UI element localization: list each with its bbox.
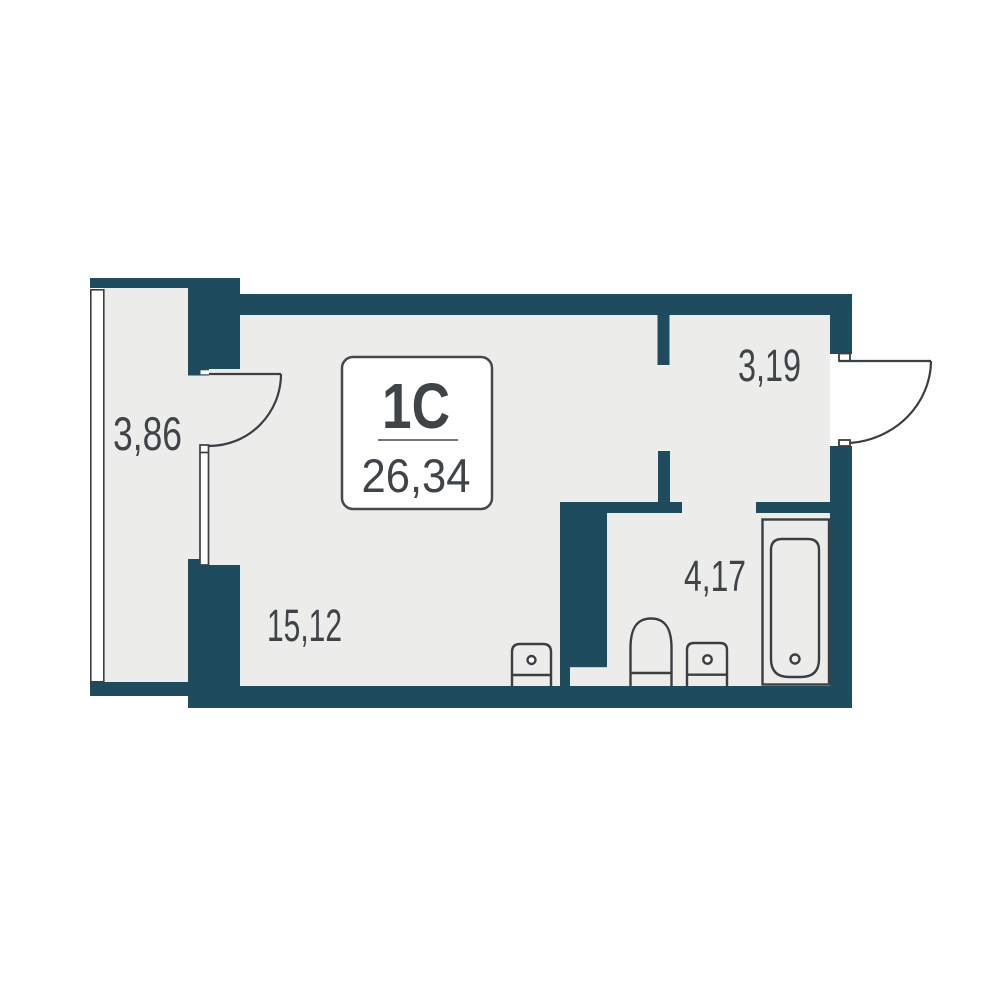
svg-text:1С: 1С [382, 370, 450, 442]
svg-text:3,86: 3,86 [113, 407, 182, 460]
svg-text:15,12: 15,12 [267, 600, 342, 651]
svg-text:3,19: 3,19 [738, 340, 801, 391]
svg-text:26,34: 26,34 [362, 449, 471, 502]
svg-text:4,17: 4,17 [684, 552, 746, 601]
